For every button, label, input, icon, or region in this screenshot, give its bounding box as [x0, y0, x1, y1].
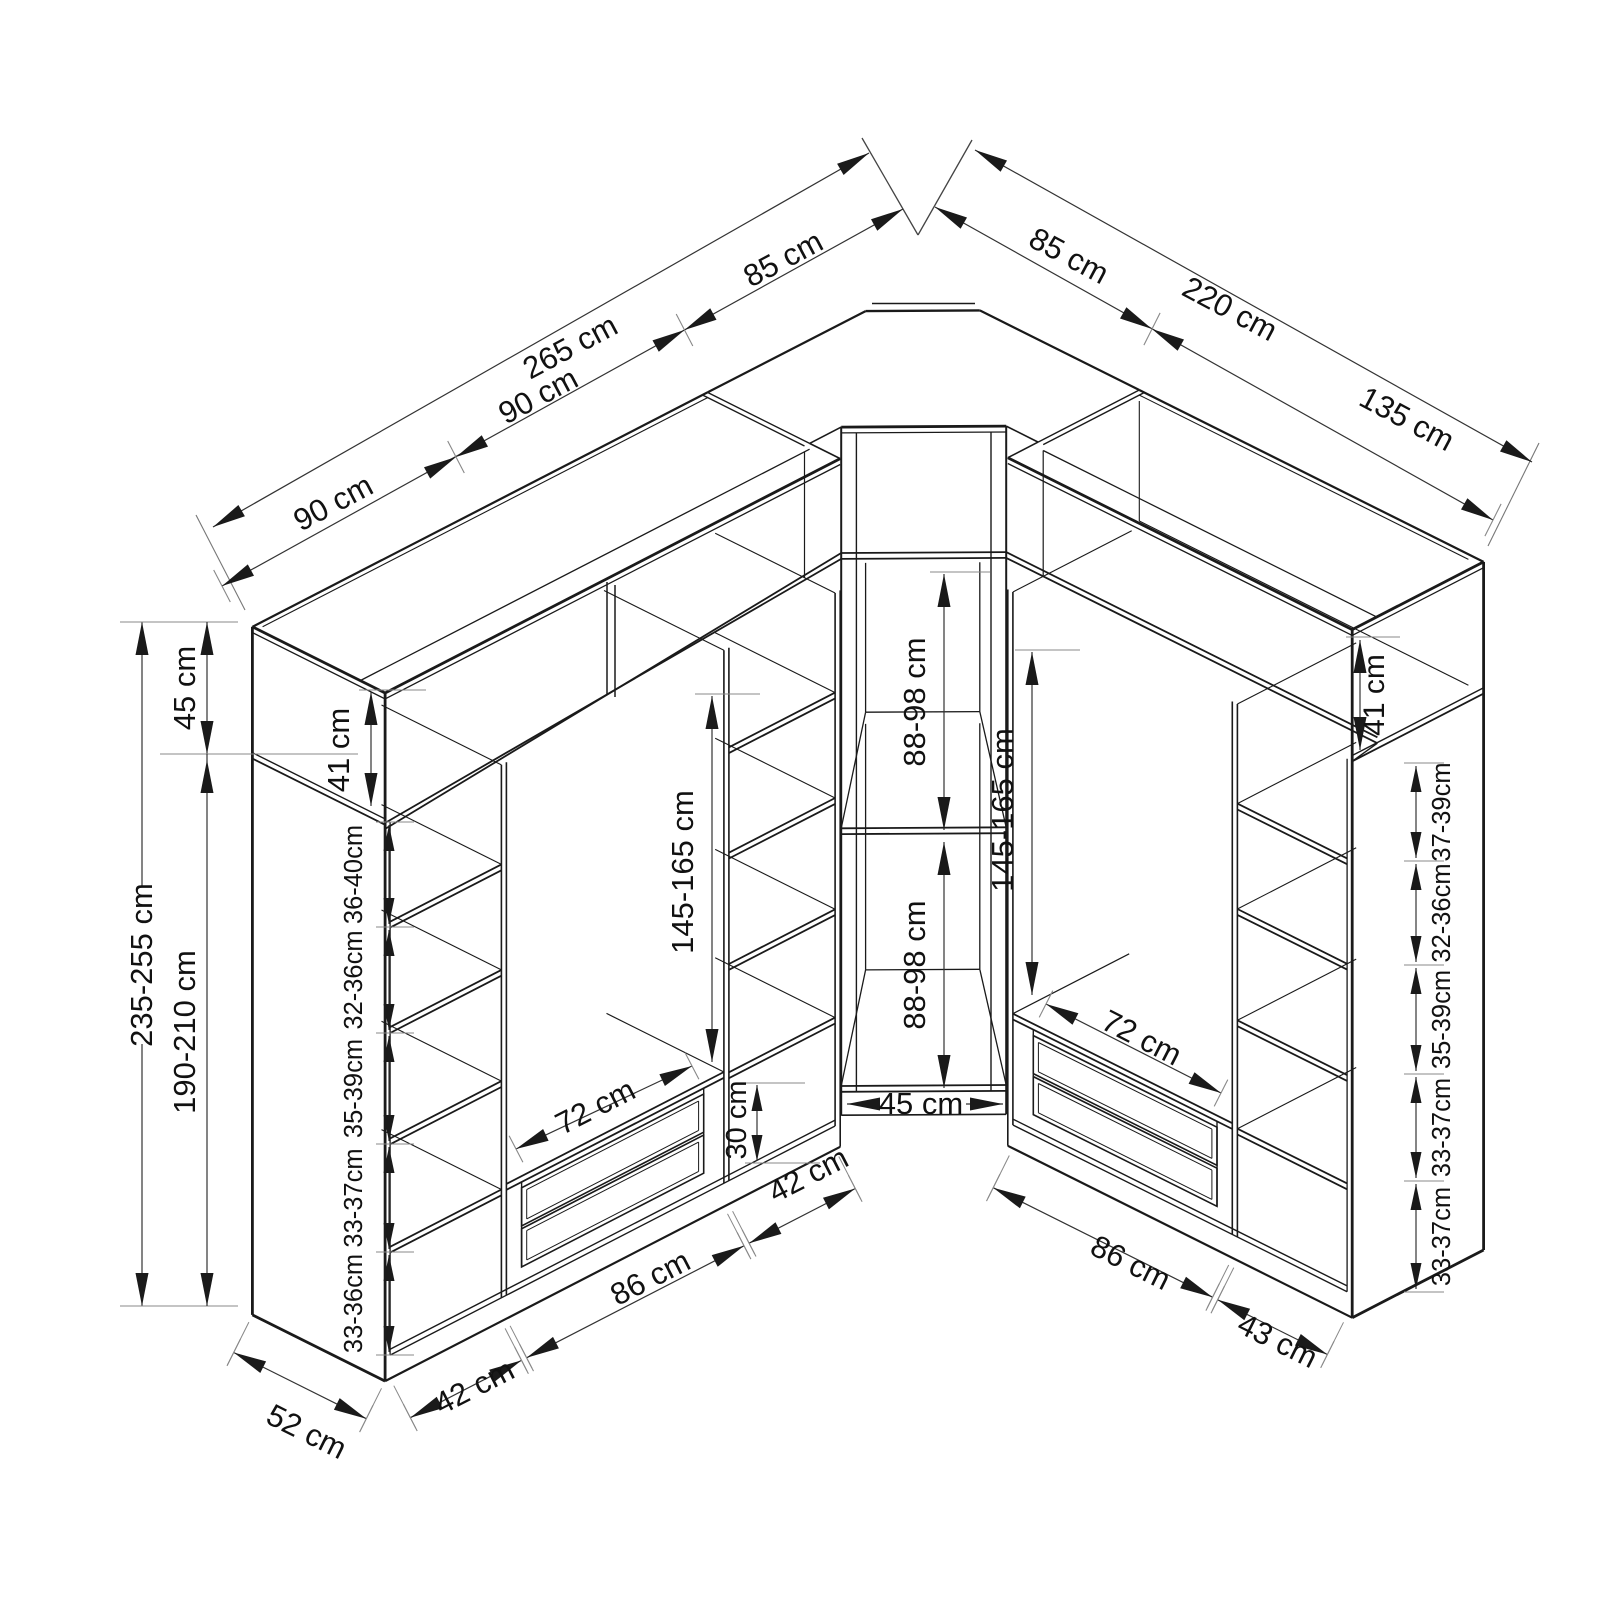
svg-text:88-98 cm: 88-98 cm	[897, 637, 932, 766]
svg-text:145-165 cm: 145-165 cm	[985, 728, 1020, 892]
svg-text:36-40cm: 36-40cm	[340, 825, 368, 924]
svg-text:190-210 cm: 190-210 cm	[167, 950, 202, 1114]
svg-text:41 cm: 41 cm	[1358, 654, 1391, 736]
svg-text:35-39cm: 35-39cm	[1428, 970, 1456, 1069]
svg-text:33-36cm: 33-36cm	[340, 1254, 368, 1353]
svg-text:45 cm: 45 cm	[167, 646, 202, 730]
svg-text:32-36cm: 32-36cm	[340, 930, 368, 1029]
svg-text:145-165 cm: 145-165 cm	[665, 790, 700, 954]
svg-text:45 cm: 45 cm	[879, 1086, 963, 1121]
svg-text:30 cm: 30 cm	[721, 1081, 753, 1160]
svg-text:37-39cm: 37-39cm	[1428, 762, 1456, 861]
svg-text:33-37cm: 33-37cm	[1428, 1187, 1456, 1286]
svg-text:41 cm: 41 cm	[321, 708, 356, 792]
svg-text:235-255 cm: 235-255 cm	[124, 883, 159, 1047]
svg-text:35-39cm: 35-39cm	[340, 1039, 368, 1138]
svg-text:88-98 cm: 88-98 cm	[897, 900, 932, 1029]
svg-text:33-37cm: 33-37cm	[1428, 1078, 1456, 1177]
svg-text:32-36cm: 32-36cm	[1428, 863, 1456, 962]
svg-text:33-37cm: 33-37cm	[340, 1148, 368, 1247]
